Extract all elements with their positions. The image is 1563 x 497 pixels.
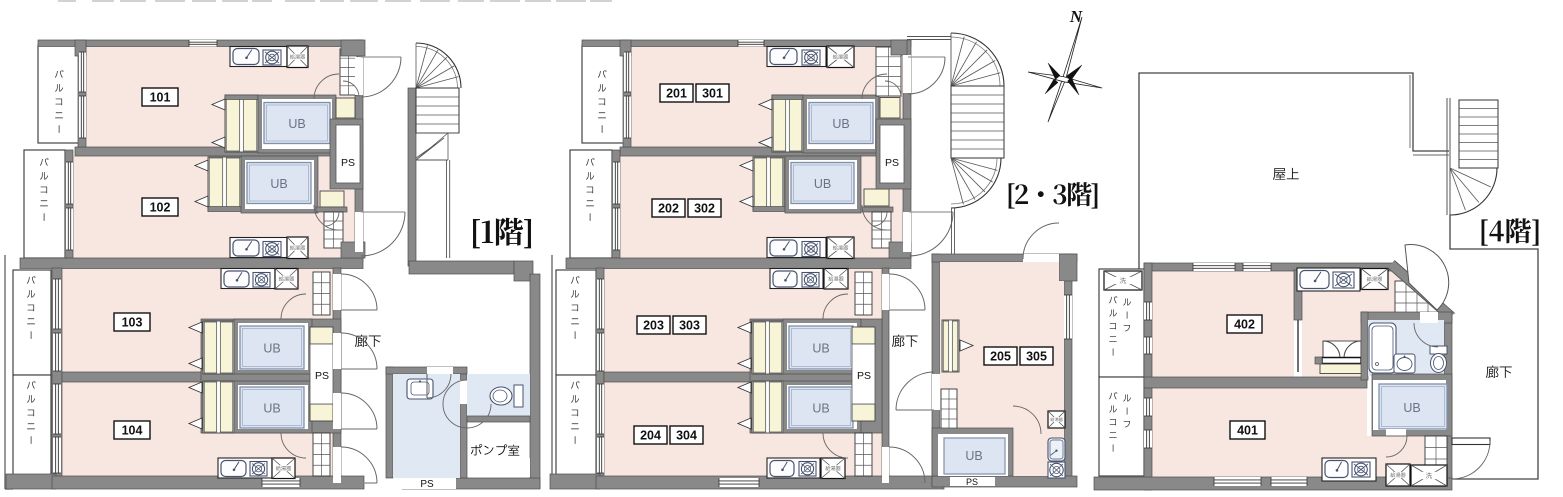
svg-text:102: 102 <box>150 201 171 215</box>
svg-text:205: 205 <box>990 350 1011 364</box>
svg-text:301: 301 <box>702 87 723 101</box>
svg-text:PS: PS <box>857 370 871 382</box>
svg-text:103: 103 <box>122 316 143 330</box>
svg-text:304: 304 <box>676 429 697 443</box>
svg-text:UB: UB <box>288 117 305 131</box>
svg-text:305: 305 <box>1026 350 1047 364</box>
svg-text:PS: PS <box>885 157 899 169</box>
svg-text:UB: UB <box>814 177 831 191</box>
svg-text:UB: UB <box>812 402 829 416</box>
svg-text:UB: UB <box>965 449 982 463</box>
svg-text:203: 203 <box>643 319 664 333</box>
svg-text:302: 302 <box>694 202 715 216</box>
svg-text:PS: PS <box>966 477 978 487</box>
svg-text:201: 201 <box>666 87 687 101</box>
svg-text:204: 204 <box>640 429 661 443</box>
svg-text:202: 202 <box>658 202 679 216</box>
svg-text:101: 101 <box>150 91 171 105</box>
svg-text:104: 104 <box>122 424 143 438</box>
svg-text:UB: UB <box>812 342 829 356</box>
svg-text:UB: UB <box>1403 401 1420 415</box>
svg-text:PS: PS <box>420 479 434 490</box>
svg-text:303: 303 <box>679 319 700 333</box>
svg-text:PS: PS <box>341 157 355 169</box>
svg-text:UB: UB <box>263 402 280 416</box>
svg-text:UB: UB <box>263 342 280 356</box>
svg-text:401: 401 <box>1237 424 1258 438</box>
svg-text:PS: PS <box>315 370 329 382</box>
svg-text:UB: UB <box>270 177 287 191</box>
svg-text:UB: UB <box>832 117 849 131</box>
svg-text:402: 402 <box>1234 318 1255 332</box>
